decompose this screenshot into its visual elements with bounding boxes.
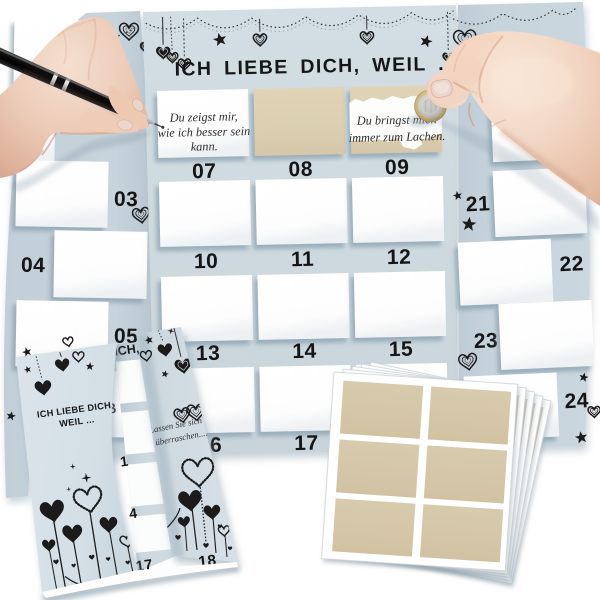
svg-text:21: 21	[465, 192, 490, 216]
svg-text:24: 24	[564, 389, 589, 413]
svg-text:17: 17	[294, 432, 319, 456]
svg-text:kann.: kann.	[191, 139, 218, 154]
svg-text:04: 04	[21, 254, 46, 277]
svg-text:11: 11	[291, 248, 315, 271]
svg-text:Du zeigst mir,: Du zeigst mir,	[168, 109, 237, 124]
svg-text:23: 23	[473, 329, 498, 353]
svg-text:wie ich besser sein: wie ich besser sein	[158, 124, 251, 140]
svg-text:immer zum Lachen.: immer zum Lachen.	[349, 129, 446, 145]
svg-text:09: 09	[385, 156, 410, 180]
svg-text:07: 07	[192, 160, 217, 184]
svg-text:08: 08	[288, 158, 313, 182]
svg-text:12: 12	[387, 246, 412, 270]
svg-text:15: 15	[389, 338, 414, 362]
svg-text:10: 10	[194, 250, 219, 274]
svg-text:13: 13	[196, 342, 221, 366]
svg-text:22: 22	[559, 252, 584, 276]
svg-text:03: 03	[114, 188, 139, 211]
svg-text:14: 14	[292, 340, 317, 364]
